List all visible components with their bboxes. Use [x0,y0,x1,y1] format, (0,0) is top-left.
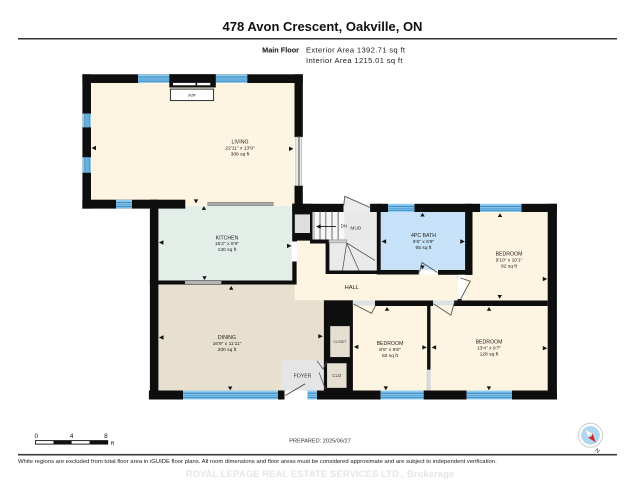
svg-text:9'10" x 10'1": 9'10" x 10'1" [496,257,523,263]
svg-text:0: 0 [35,433,39,440]
svg-text:130 sq ft: 130 sq ft [218,247,237,253]
svg-text:92 sq ft: 92 sq ft [501,263,518,269]
svg-text:8: 8 [104,433,108,440]
svg-text:White regions are excluded fro: White regions are excluded from total fl… [18,459,497,465]
svg-text:8'6" x 9'8": 8'6" x 9'8" [379,347,401,353]
svg-text:ROYAL LEPAGE REAL ESTATE SERVI: ROYAL LEPAGE REAL ESTATE SERVICES LTD., … [186,469,455,480]
svg-text:22'11" x 13'9": 22'11" x 13'9" [225,146,254,152]
svg-text:DINING: DINING [218,335,236,341]
svg-text:F/P: F/P [188,93,195,98]
svg-text:LIVING: LIVING [231,140,248,146]
svg-text:ft: ft [111,441,115,447]
svg-text:Exterior Area 1392.71 sq ft: Exterior Area 1392.71 sq ft [306,46,406,55]
svg-text:DN: DN [341,223,348,228]
svg-text:65 sq ft: 65 sq ft [415,245,432,251]
svg-text:BEDROOM: BEDROOM [496,251,523,257]
svg-text:128 sq ft: 128 sq ft [480,351,499,357]
svg-text:4PC BATH: 4PC BATH [411,233,436,239]
svg-text:Interior Area 1215.01 sq ft: Interior Area 1215.01 sq ft [306,56,403,65]
svg-text:BEDROOM: BEDROOM [377,341,404,347]
svg-text:Main Floor: Main Floor [262,46,299,55]
svg-text:15'2" x 8'9": 15'2" x 8'9" [215,241,239,247]
svg-text:82 sq ft: 82 sq ft [382,353,399,359]
svg-text:CLOSET: CLOSET [333,340,347,344]
svg-text:FOYER: FOYER [294,373,312,379]
svg-text:13'4" x 9'7": 13'4" x 9'7" [477,345,501,351]
svg-text:KITCHEN: KITCHEN [216,235,239,241]
svg-text:CLO: CLO [332,373,342,378]
svg-text:PREPARED: 2025/06/27: PREPARED: 2025/06/27 [289,438,350,444]
svg-text:308 sq ft: 308 sq ft [231,152,250,158]
svg-text:16'9" x 11'11": 16'9" x 11'11" [213,341,242,347]
svg-text:HALL: HALL [345,285,359,291]
svg-text:MUD: MUD [350,225,361,231]
svg-text:478 Avon Crescent, Oakville, O: 478 Avon Crescent, Oakville, ON [223,19,423,34]
svg-text:200 sq ft: 200 sq ft [218,347,237,353]
svg-text:9'6" x 6'9": 9'6" x 6'9" [413,239,435,245]
svg-text:BEDROOM: BEDROOM [476,339,503,345]
svg-text:4: 4 [70,433,74,440]
